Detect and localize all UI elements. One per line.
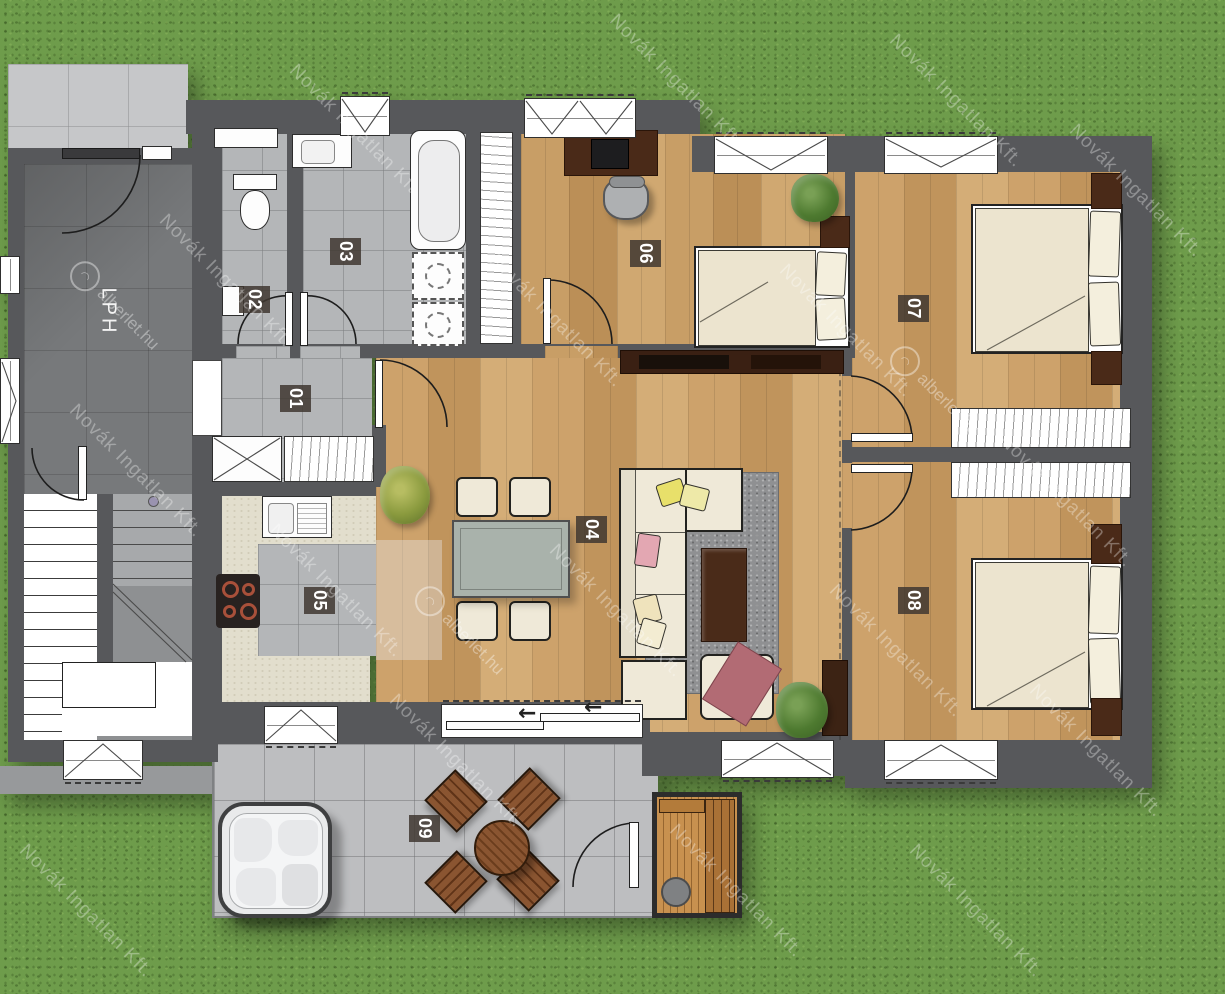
opening-06 [545, 346, 618, 358]
office-chair [603, 178, 649, 220]
window-bath [340, 96, 390, 136]
opening-hall-01 [192, 360, 222, 436]
stairwell [24, 494, 192, 742]
window-dash [342, 92, 388, 94]
builtin-closet [480, 132, 513, 344]
window-dash [443, 700, 641, 702]
window-stairwell [63, 740, 143, 780]
hot-tub [218, 802, 332, 918]
window-dash [526, 94, 634, 96]
tv-sideboard [620, 350, 844, 374]
nightstand [1091, 351, 1122, 385]
entrance-porch [8, 64, 188, 150]
window-dash [723, 780, 832, 782]
dining-chair [509, 477, 551, 517]
dining-table [452, 520, 570, 598]
room-label-07: 07 [898, 295, 929, 322]
toilet-tank [233, 174, 277, 190]
window-hall-tall [0, 358, 20, 444]
double-bed [971, 558, 1123, 710]
sink-basin [268, 503, 294, 534]
wardrobe-08 [951, 462, 1131, 498]
door-leaf-06 [543, 278, 551, 344]
window-room07 [884, 136, 998, 174]
stair-newel-dot [148, 496, 159, 507]
bath-basin [301, 140, 335, 164]
sink-drainboard [297, 503, 327, 534]
double-bed [971, 204, 1123, 354]
room-label-03: 03 [330, 238, 361, 265]
door-leaf-03 [300, 292, 308, 346]
door-leaf-07 [851, 433, 913, 442]
washer-drum [425, 263, 451, 289]
dining-chair [456, 477, 498, 517]
floor-plan-scene: ← ← [0, 0, 1225, 994]
sauna [652, 792, 742, 918]
bath-vanity [292, 134, 352, 168]
kitchen-sink-unit [262, 496, 332, 538]
window-room08 [884, 740, 998, 780]
terrace-table [474, 820, 530, 876]
room-label-06: 06 [630, 240, 661, 267]
toilet-bowl [240, 190, 270, 230]
room-label-04: 04 [576, 516, 607, 543]
door-leaf-02 [285, 292, 293, 346]
room-label-08: 08 [898, 587, 929, 614]
door-leaf-08 [851, 464, 913, 473]
dryer-drum [425, 312, 451, 338]
nightstand [1091, 698, 1122, 736]
single-bed [694, 246, 850, 348]
slide-arrow: ← [584, 697, 602, 719]
sauna-stove [661, 877, 691, 907]
cooktop [216, 574, 260, 628]
door-leaf-sauna [629, 822, 639, 888]
house: ← ← [0, 0, 1225, 994]
wardrobe-01-hanging [284, 436, 374, 482]
room-label-01: 01 [280, 385, 311, 412]
slide-arrow: ← [518, 703, 536, 725]
entrance-sidelight [142, 146, 172, 160]
bathtub-inner [418, 140, 460, 242]
opening-07 [842, 376, 852, 440]
sofa-pillow [634, 533, 661, 569]
plant [776, 682, 828, 738]
nightstand [1091, 173, 1122, 209]
coffee-table [701, 548, 747, 642]
window-room06-a [524, 98, 636, 138]
window-hall-small [0, 256, 20, 294]
window-living [721, 740, 834, 778]
bookshelf [822, 660, 848, 736]
stair-opening-outline [62, 662, 156, 708]
window-dash [886, 132, 996, 134]
bathtub [410, 130, 466, 250]
window-room06-b [714, 136, 828, 174]
room-label-02: 02 [239, 286, 270, 313]
desk-monitor [591, 139, 629, 169]
entrance-door-leaf [62, 148, 140, 159]
plant [791, 174, 839, 222]
room-label-05: 05 [304, 587, 335, 614]
kitchen-counter-bottom [210, 656, 370, 702]
wardrobe-01-shelf [212, 436, 282, 482]
stair-flight-right [113, 494, 193, 586]
wc-shelf [214, 128, 278, 148]
wall-closet-06 [513, 130, 521, 352]
sauna-bench [705, 799, 735, 913]
dining-chair [509, 601, 551, 641]
window-dash [716, 132, 826, 134]
window-dash [266, 746, 336, 748]
sauna-bench-top [659, 799, 705, 813]
washing-machine [412, 252, 464, 300]
sliding-door: ← ← [441, 704, 643, 738]
wall-01-kitchen [210, 482, 376, 496]
window-dash [65, 782, 141, 784]
wall-wing-left [8, 150, 24, 762]
plant [380, 466, 430, 524]
stair-center-wall [97, 494, 113, 664]
opening-03 [300, 346, 360, 358]
wall-03-closet [466, 130, 480, 352]
room-label-09: 09 [409, 815, 440, 842]
door-leaf-01 [375, 360, 383, 428]
window-dash [886, 782, 996, 784]
door-leaf-hall [78, 446, 87, 500]
window-kitchen [264, 706, 338, 744]
dryer [412, 302, 464, 346]
armchair [700, 654, 774, 720]
nightstand [820, 216, 850, 248]
armchair-blanket [702, 641, 782, 726]
nightstand [1091, 524, 1122, 564]
opening-02 [236, 346, 290, 358]
